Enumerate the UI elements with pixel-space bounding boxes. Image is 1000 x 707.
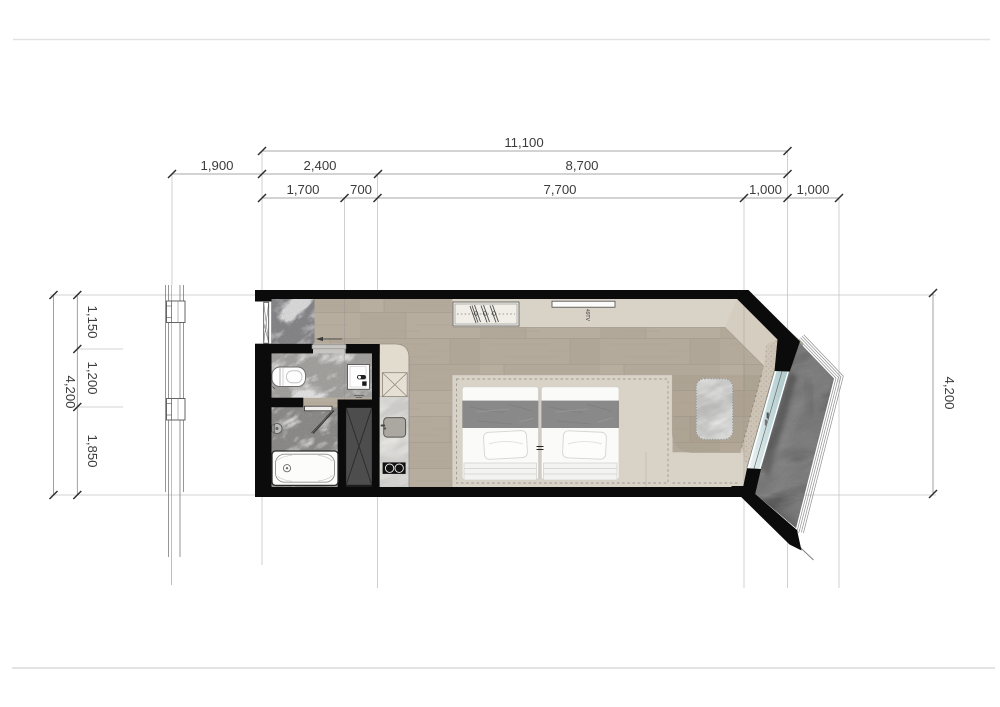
svg-text:1,850: 1,850 [85, 434, 100, 467]
svg-text:7,700: 7,700 [543, 182, 576, 197]
svg-text:4,200: 4,200 [63, 375, 78, 408]
svg-text:8,700: 8,700 [565, 158, 598, 173]
svg-text:49TV: 49TV [584, 309, 590, 322]
svg-text:1,000: 1,000 [749, 182, 782, 197]
svg-text:1,150: 1,150 [85, 305, 100, 338]
svg-text:4,200: 4,200 [942, 376, 957, 409]
svg-text:700: 700 [350, 182, 372, 197]
svg-text:2,400: 2,400 [303, 158, 336, 173]
svg-text:1,000: 1,000 [796, 182, 829, 197]
svg-text:1,900: 1,900 [200, 158, 233, 173]
svg-text:11,100: 11,100 [504, 135, 543, 150]
svg-text:1,200: 1,200 [85, 361, 100, 394]
svg-text:1,700: 1,700 [286, 182, 319, 197]
